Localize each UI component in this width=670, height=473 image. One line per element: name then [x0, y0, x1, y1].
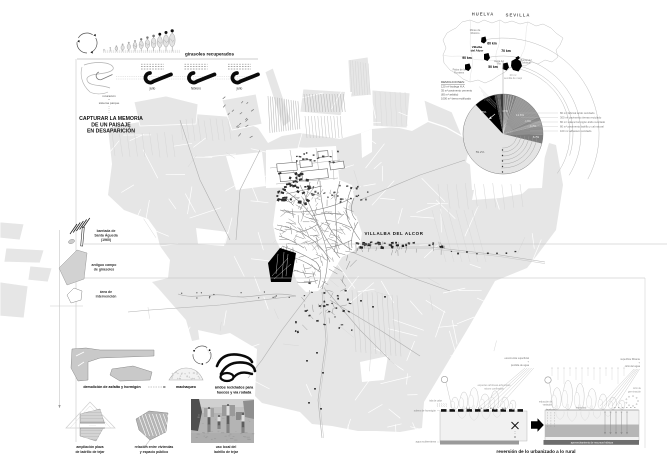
- svg-text:HUELVA: HUELVA: [472, 12, 495, 17]
- svg-text:semilla de mapi: semilla de mapi: [504, 76, 522, 80]
- svg-text:de ladrillo de tejar: de ladrillo de tejar: [75, 450, 105, 454]
- svg-text:90 km: 90 km: [462, 56, 472, 60]
- svg-text:humedad: humedad: [576, 407, 587, 410]
- svg-text:escorrentía superficial: escorrentía superficial: [505, 357, 530, 360]
- svg-text:ciclo del agua: ciclo del agua: [625, 365, 641, 368]
- svg-text:Riotinto: Riotinto: [471, 31, 480, 35]
- svg-text:áridos reciclados para: áridos reciclados para: [215, 386, 254, 390]
- svg-text:roturación: roturación: [102, 94, 116, 98]
- svg-text:120 m² bodega H.A.: 120 m² bodega H.A.: [441, 85, 465, 89]
- svg-text:barriada de: barriada de: [97, 229, 116, 233]
- svg-text:uso local del: uso local del: [216, 445, 237, 449]
- svg-text:100 m² adhesivo reciclado: 100 m² adhesivo reciclado: [560, 129, 592, 133]
- svg-text:70 km: 70 km: [501, 49, 511, 53]
- svg-text:antiguo campo: antiguo campo: [92, 263, 117, 267]
- svg-text:1000 m³ tierra rectificada: 1000 m³ tierra rectificada: [441, 97, 471, 101]
- svg-text:4.7%: 4.7%: [530, 124, 537, 128]
- svg-text:germinación: germinación: [628, 390, 642, 393]
- svg-text:ampliación plaza: ampliación plaza: [76, 445, 103, 449]
- svg-text:solera de hormigón: solera de hormigón: [414, 409, 437, 413]
- svg-text:demolición de asfalto y hormig: demolición de asfalto y hormigón: [83, 385, 140, 389]
- svg-text:(1960): (1960): [101, 238, 111, 242]
- svg-text:(65 m² asfalto): (65 m² asfalto): [441, 93, 458, 97]
- svg-text:agua subterránea: agua subterránea: [416, 440, 437, 444]
- svg-text:relación entre viviendas: relación entre viviendas: [135, 445, 174, 449]
- svg-text:y espacio público: y espacio público: [140, 450, 168, 454]
- svg-text:área de: área de: [100, 290, 112, 294]
- svg-text:50 km: 50 km: [488, 65, 498, 69]
- svg-text:machaqueo: machaqueo: [176, 385, 197, 389]
- svg-text:febrero: febrero: [191, 87, 201, 91]
- svg-text:80 m² solera hormigón árido re: 80 m² solera hormigón árido reciclado: [560, 120, 606, 124]
- svg-text:DEMOLICIONES:: DEMOLICIONES:: [441, 80, 465, 84]
- svg-text:12.6%: 12.6%: [516, 113, 524, 117]
- svg-text:Frontera: Frontera: [454, 71, 464, 75]
- svg-text:ladrillo de tejar: ladrillo de tejar: [214, 450, 239, 454]
- svg-text:8.5%: 8.5%: [480, 110, 487, 114]
- svg-text:CAPTURAR LA MEMORIA: CAPTURAR LA MEMORIA: [79, 116, 143, 122]
- svg-text:60 km: 60 km: [487, 42, 497, 46]
- svg-text:EN DESAPARICIÓN: EN DESAPARICIÓN: [87, 127, 135, 135]
- svg-text:variación: variación: [543, 404, 553, 407]
- svg-text:huecos y vía rodada: huecos y vía rodada: [217, 391, 253, 395]
- svg-text:girasoles recuperados: girasoles recuperados: [185, 52, 234, 57]
- svg-text:isla de calor: isla de calor: [429, 400, 442, 403]
- svg-text:59.2%: 59.2%: [476, 150, 485, 154]
- svg-text:VILLALBA DEL ALCOR: VILLALBA DEL ALCOR: [365, 231, 424, 236]
- svg-text:pérdida de agua: pérdida de agua: [511, 364, 530, 367]
- svg-text:de girasoles: de girasoles: [94, 268, 114, 272]
- svg-text:0.9%: 0.9%: [494, 97, 501, 101]
- svg-text:Torbiscal: Torbiscal: [521, 62, 531, 65]
- svg-text:·······: ·······: [89, 424, 96, 428]
- svg-text:80 m² pavimento ladrillo y cal: 80 m² pavimento ladrillo y cal natural: [560, 125, 604, 129]
- svg-text:6.7%: 6.7%: [533, 135, 540, 139]
- svg-text:Santa Águeda: Santa Águeda: [94, 233, 117, 238]
- svg-text:sistema parque: sistema parque: [99, 101, 120, 105]
- svg-text:17%: 17%: [502, 109, 508, 113]
- svg-text:300 m² pavimento tierras recic: 300 m² pavimento tierras reciclado: [560, 116, 602, 120]
- svg-text:reducción de: reducción de: [539, 401, 553, 404]
- svg-text:intervención: intervención: [96, 295, 117, 299]
- svg-text:SEVILLA: SEVILLA: [506, 13, 531, 18]
- svg-text:reversión de lo urbanizado a l: reversión de lo urbanizado a lo rural: [496, 449, 575, 454]
- svg-text:DE UN PAISAJE: DE UN PAISAJE: [91, 122, 131, 128]
- svg-text:del Alcor: del Alcor: [471, 49, 485, 53]
- svg-text:1.6%: 1.6%: [525, 120, 531, 123]
- svg-text:35 m² pavimento cemento: 35 m² pavimento cemento: [441, 89, 473, 93]
- svg-text:julio: julio: [149, 87, 156, 91]
- svg-text:julio: julio: [236, 87, 243, 91]
- svg-text:aprovechamiento de recursos hí: aprovechamiento de recursos hídricos: [571, 442, 614, 445]
- svg-text:80 m² fabrical árido reciclado: 80 m² fabrical árido reciclado: [560, 111, 595, 115]
